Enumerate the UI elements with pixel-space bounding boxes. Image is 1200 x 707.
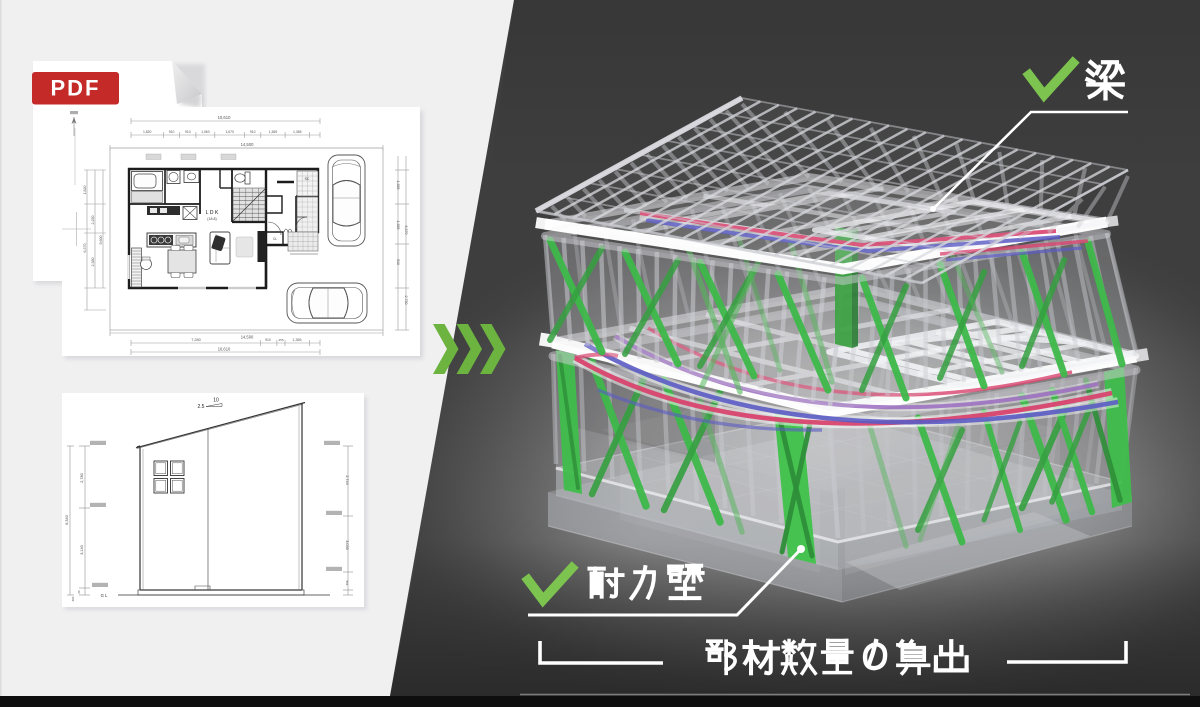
svg-text:PDF: PDF — [51, 76, 101, 101]
svg-text:1,365: 1,365 — [396, 181, 400, 190]
svg-text:2,380: 2,380 — [91, 258, 95, 267]
svg-text:2,730: 2,730 — [404, 296, 408, 305]
svg-text:910: 910 — [265, 338, 271, 342]
svg-text:455: 455 — [278, 338, 283, 342]
svg-text:561: 561 — [345, 581, 349, 586]
svg-text:10,610: 10,610 — [218, 347, 231, 352]
svg-text:6,370: 6,370 — [404, 226, 408, 235]
svg-text:(18.8): (18.8) — [207, 217, 216, 221]
svg-text:6,340: 6,340 — [65, 515, 69, 525]
svg-text:9,600: 9,600 — [99, 236, 103, 245]
svg-text:910: 910 — [396, 259, 400, 265]
svg-text:G L: G L — [101, 593, 108, 598]
svg-text:SC: SC — [305, 177, 310, 181]
svg-text:910: 910 — [185, 130, 191, 134]
svg-text:2,744: 2,744 — [345, 475, 349, 485]
svg-text:2.5: 2.5 — [198, 404, 205, 410]
svg-text:910: 910 — [169, 130, 175, 134]
svg-text:14,500: 14,500 — [241, 142, 254, 147]
svg-text:10,610: 10,610 — [218, 115, 231, 120]
svg-text:1,365: 1,365 — [293, 338, 302, 342]
svg-text:1,365: 1,365 — [269, 130, 278, 134]
svg-text:2,780: 2,780 — [80, 473, 84, 483]
svg-text:400: 400 — [71, 596, 75, 601]
svg-text:CL: CL — [273, 237, 277, 241]
svg-text:1,820: 1,820 — [143, 130, 152, 134]
svg-text:3,140: 3,140 — [80, 545, 84, 555]
svg-text:1,060: 1,060 — [201, 130, 210, 134]
svg-text:1,670: 1,670 — [225, 130, 234, 134]
svg-text:10: 10 — [213, 398, 219, 404]
svg-text:910: 910 — [250, 130, 256, 134]
svg-text:20: 20 — [77, 590, 81, 594]
svg-text:1,820: 1,820 — [83, 186, 87, 195]
svg-text:1,365: 1,365 — [293, 130, 302, 134]
svg-text:3,035: 3,035 — [345, 540, 349, 550]
svg-text:7,280: 7,280 — [191, 338, 201, 342]
svg-text:L D K: L D K — [206, 210, 219, 216]
svg-text:2,250: 2,250 — [91, 216, 95, 225]
svg-text:14,500: 14,500 — [241, 335, 254, 340]
svg-text:1,365: 1,365 — [396, 221, 400, 230]
svg-text:6,370: 6,370 — [83, 244, 87, 253]
